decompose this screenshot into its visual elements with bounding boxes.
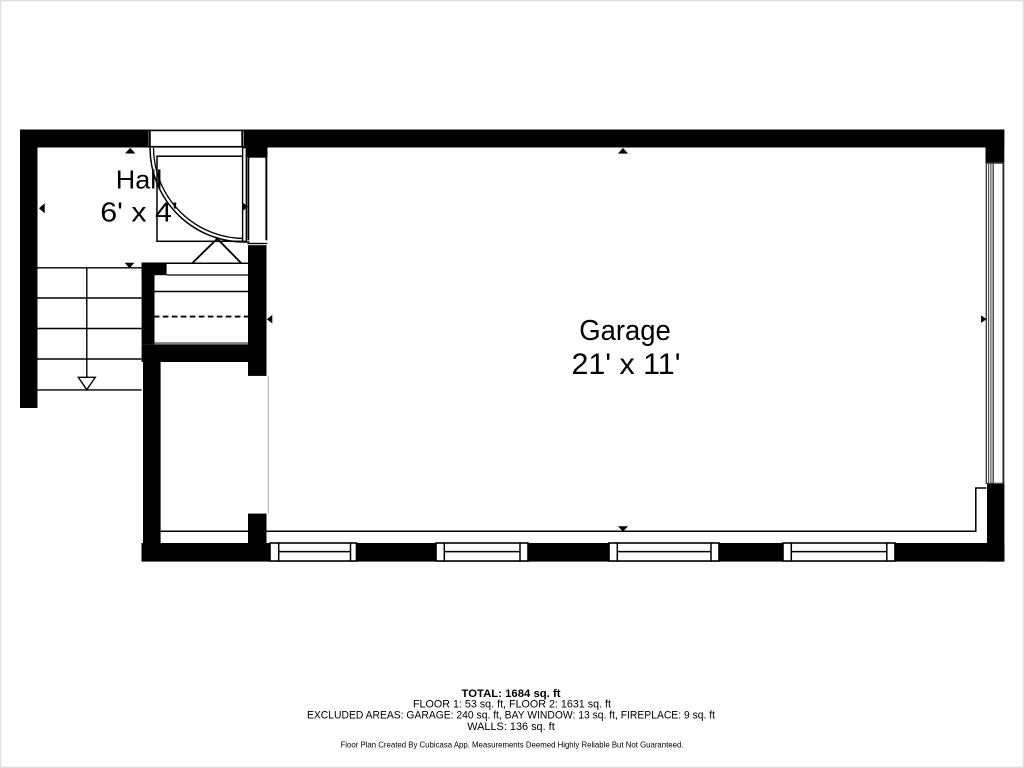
- svg-text:EXCLUDED AREAS: GARAGE: 240 sq: EXCLUDED AREAS: GARAGE: 240 sq. ft, BAY …: [307, 710, 715, 722]
- svg-text:6' x 4': 6' x 4': [100, 196, 178, 227]
- svg-text:Floor Plan Created By Cubicasa: Floor Plan Created By Cubicasa App. Meas…: [341, 739, 684, 749]
- svg-text:21' x 11': 21' x 11': [572, 348, 681, 381]
- svg-text:Hall: Hall: [116, 165, 163, 195]
- svg-text:WALLS: 136 sq. ft: WALLS: 136 sq. ft: [467, 721, 555, 733]
- svg-text:Garage: Garage: [579, 315, 671, 347]
